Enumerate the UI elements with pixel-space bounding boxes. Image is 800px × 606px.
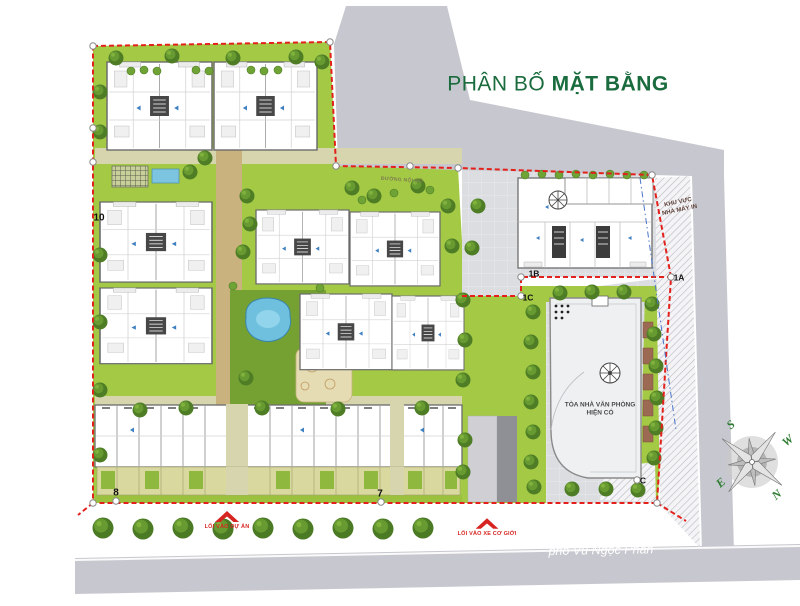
marker-label-1a: 1A [674,273,685,282]
title-regular: PHÂN BỐ [447,72,551,95]
entrance-arrow-icon [476,518,499,528]
office-emblem-icon [600,363,620,383]
plot-label-8: 8 [113,488,119,499]
page-title: PHÂN BỐ MẶT BẰNG [447,72,669,95]
townhouse-row [95,404,462,495]
plot-label-7: 7 [377,489,383,500]
building-1a [518,178,653,268]
site-plan-canvas [0,0,800,606]
street-name: phố Vũ Ngọc Phan [548,543,653,559]
site-plan: PHÂN BỐ MẶT BẰNG phố Vũ Ngọc Phan LỐI VÀ… [0,0,800,606]
marker-label-1b: 1B [529,269,540,278]
dark-walkway [497,416,517,502]
pond [152,169,179,183]
title-bold: MẶT BẰNG [552,72,669,95]
vehicle-entrance-label: LỐI VÀO XE CƠ GIỚI [458,531,517,537]
marker-label-1c: 1C [523,293,534,302]
office-label-line2: HIỆN CÓ [565,410,636,418]
building-1a-emblem-icon [549,191,567,209]
marker-label-c: C [640,476,646,485]
office-building [550,296,653,478]
pergola [112,166,148,187]
plot-label-10: 10 [93,213,104,224]
project-entrance-label: LỐI VÀO DỰ ÁN [205,524,250,530]
office-building-label: TÒA NHÀ VĂN PHÒNG HIỆN CÓ [565,402,636,419]
